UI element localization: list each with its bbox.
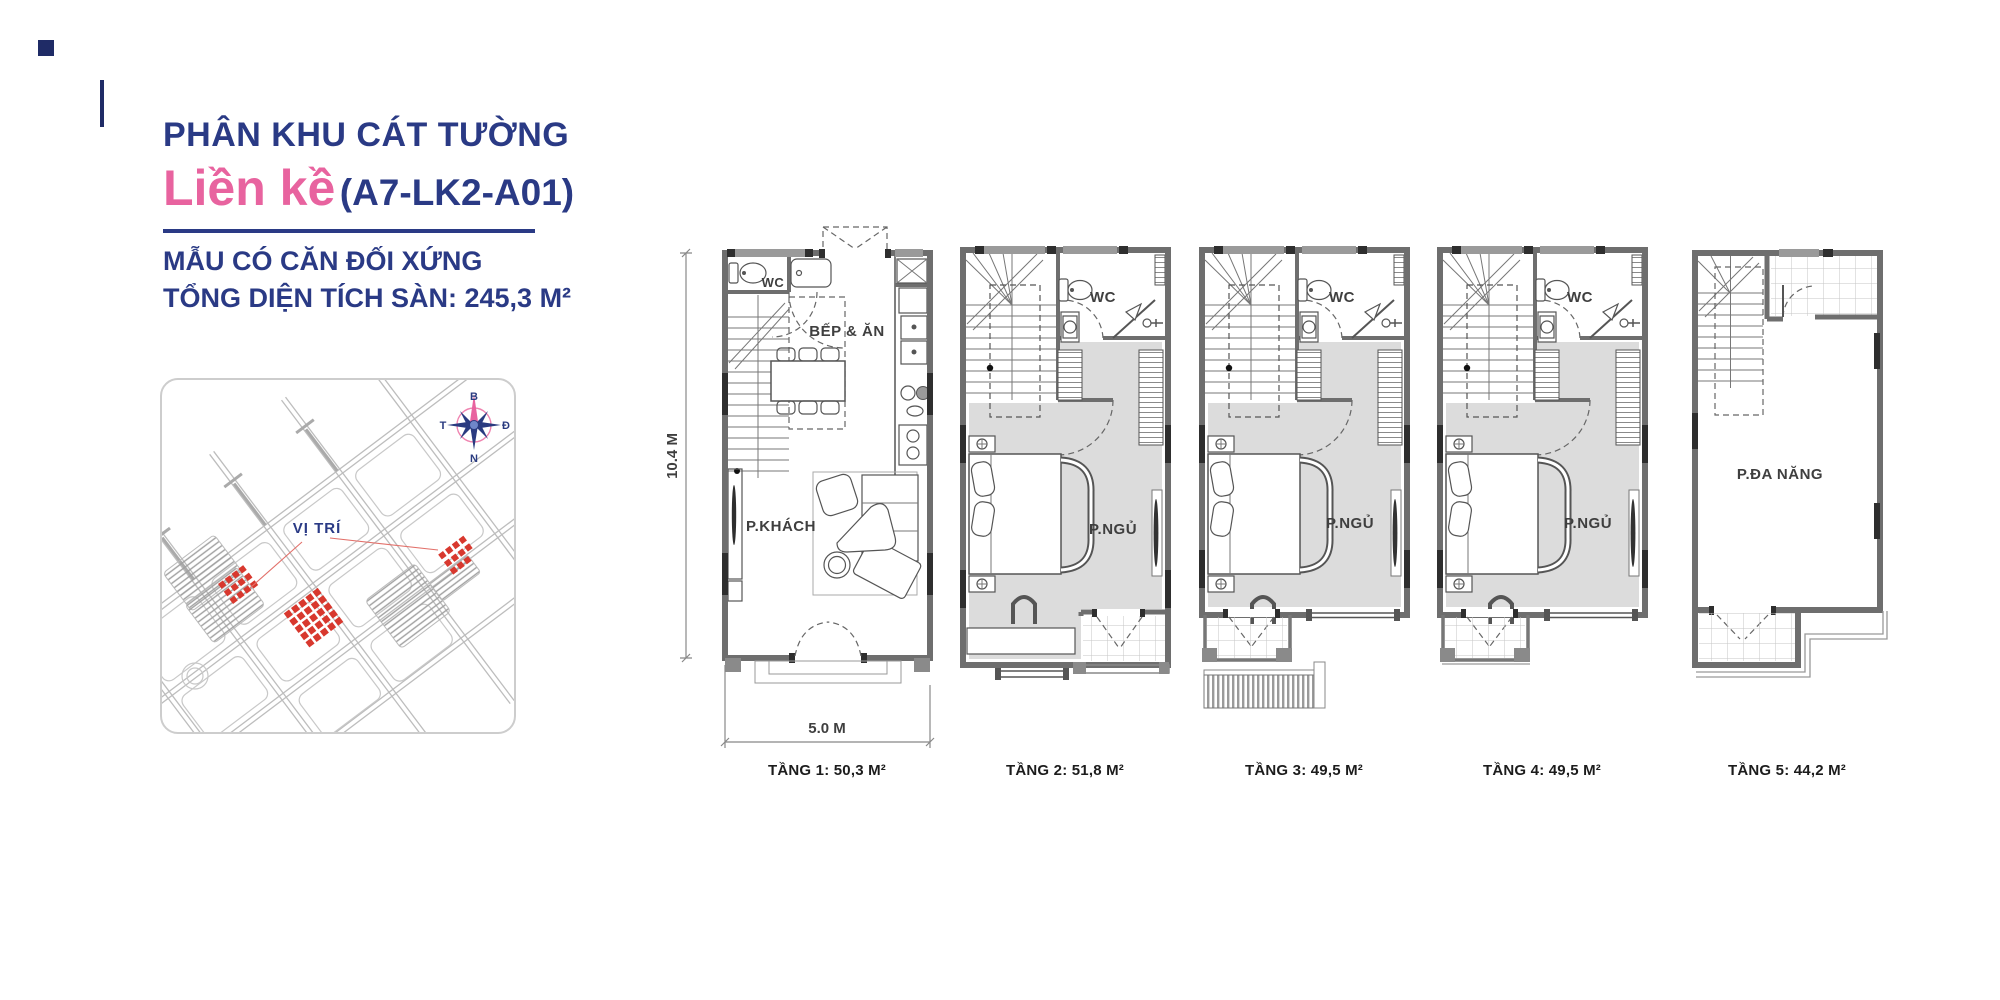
product-type-label: Liền kề bbox=[163, 160, 335, 216]
floorplan-sheet: PHÂN KHU CÁT TƯỜNG Liền kề (A7-LK2-A01) … bbox=[0, 0, 2000, 1000]
floor-plan-1: WC BẾP & ĂN bbox=[664, 227, 934, 748]
header-divider bbox=[163, 229, 535, 233]
floor1-wc-label: WC bbox=[762, 275, 785, 290]
floor2-wc-label: WC bbox=[1090, 289, 1116, 306]
floor-plan-4: WC P.NGỦ bbox=[1437, 246, 1648, 664]
floor4-bedroom-label: P.NGỦ bbox=[1564, 514, 1612, 532]
subtitle-row: Liền kề (A7-LK2-A01) bbox=[163, 159, 583, 217]
logo-mark-square bbox=[38, 40, 54, 56]
floor-plan-3: WC P.NGỦ bbox=[1199, 246, 1410, 708]
floor1-caption: TẦNG 1: 50,3 M² bbox=[727, 762, 927, 779]
depth-dimension-label: 10.4 M bbox=[664, 433, 681, 479]
site-map-panel: VỊ TRÍ B N Đ T bbox=[160, 378, 516, 734]
floor-plan-5: P.ĐA NĂNG bbox=[1692, 249, 1887, 677]
floor5-multipurpose-label: P.ĐA NĂNG bbox=[1737, 466, 1823, 483]
compass-north-label: B bbox=[470, 391, 478, 403]
floor2-bedroom-label: P.NGỦ bbox=[1089, 520, 1137, 538]
floor1-living-label: P.KHÁCH bbox=[746, 518, 816, 535]
model-description: MẪU CÓ CĂN ĐỐI XỨNG bbox=[163, 245, 583, 279]
roundabout bbox=[182, 663, 208, 689]
floor1-kitchen-label: BẾP & ĂN bbox=[809, 323, 884, 340]
compass-south-label: N bbox=[470, 453, 478, 465]
unit-code: (A7-LK2-A01) bbox=[340, 172, 574, 213]
total-area-label: TỔNG DIỆN TÍCH SÀN: 245,3 M² bbox=[163, 283, 583, 314]
floor4-wc-label: WC bbox=[1567, 289, 1593, 306]
header: PHÂN KHU CÁT TƯỜNG Liền kề (A7-LK2-A01) … bbox=[163, 116, 583, 314]
floor3-caption: TẦNG 3: 49,5 M² bbox=[1204, 762, 1404, 779]
compass-east-label: Đ bbox=[502, 420, 510, 432]
page-title: PHÂN KHU CÁT TƯỜNG bbox=[163, 116, 583, 155]
compass-west-label: T bbox=[440, 420, 447, 432]
width-dimension-label: 5.0 M bbox=[808, 720, 846, 737]
depth-dimension: 10.4 M bbox=[664, 249, 692, 662]
compass-rose-icon: B N Đ T bbox=[440, 391, 510, 465]
floor3-wc-label: WC bbox=[1329, 289, 1355, 306]
floor-plan-2: WC P.NGỦ bbox=[960, 246, 1171, 680]
logo-mark-bar bbox=[100, 80, 104, 127]
location-label: VỊ TRÍ bbox=[293, 520, 342, 537]
width-dimension: 5.0 M bbox=[721, 665, 934, 748]
floor5-caption: TẦNG 5: 44,2 M² bbox=[1687, 762, 1887, 779]
floor-plans: WC BẾP & ĂN bbox=[600, 200, 2000, 800]
site-map: VỊ TRÍ B N Đ T bbox=[162, 380, 514, 732]
floor4-caption: TẦNG 4: 49,5 M² bbox=[1442, 762, 1642, 779]
floor2-caption: TẦNG 2: 51,8 M² bbox=[965, 762, 1165, 779]
floor3-bedroom-label: P.NGỦ bbox=[1326, 514, 1374, 532]
